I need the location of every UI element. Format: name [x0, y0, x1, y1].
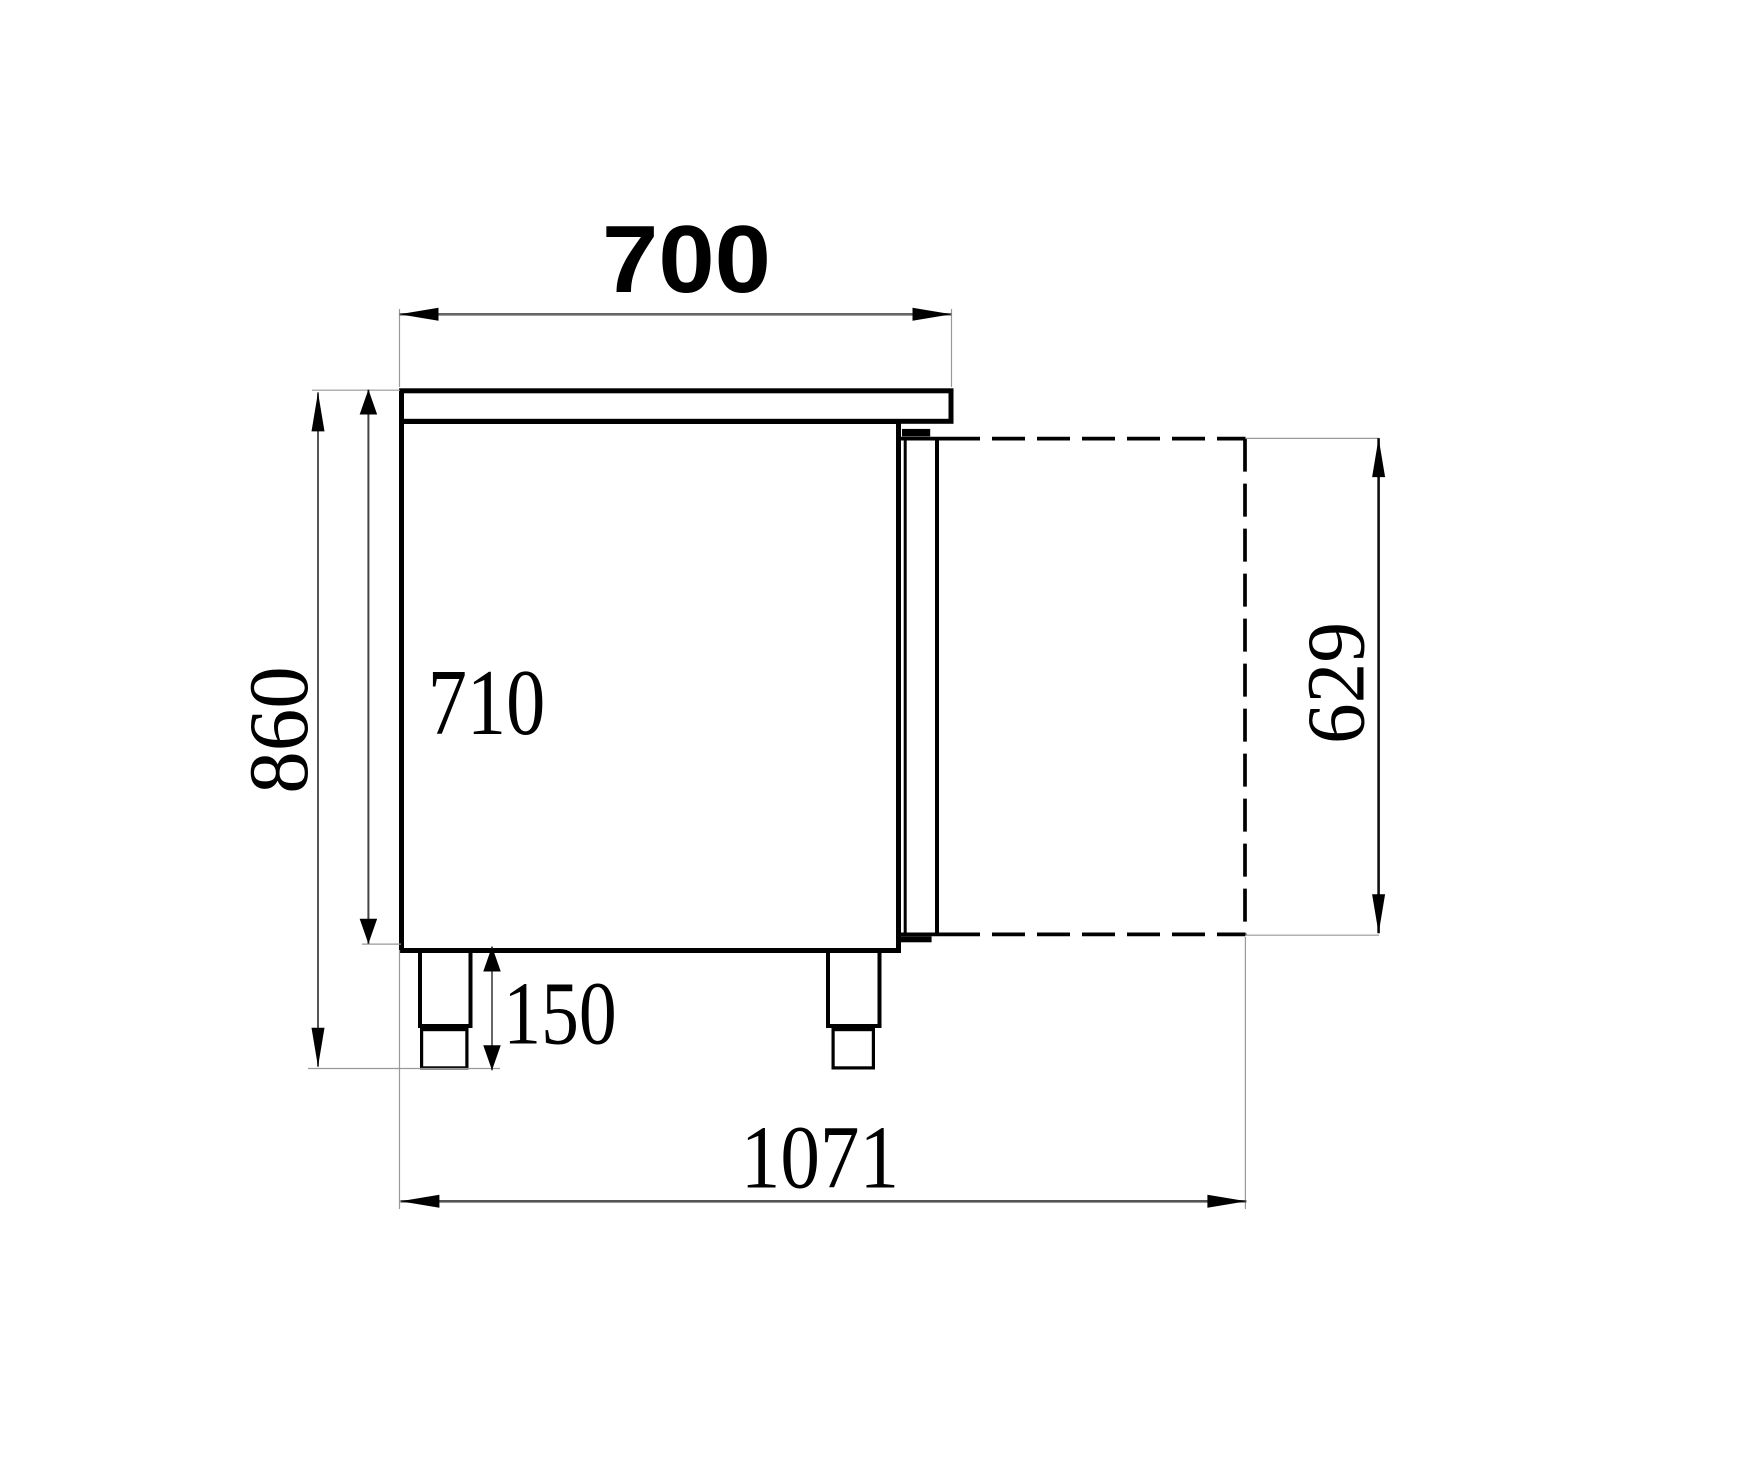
svg-text:629: 629 [1290, 622, 1382, 744]
svg-text:1071: 1071 [741, 1108, 899, 1208]
svg-text:700: 700 [602, 205, 771, 312]
svg-text:710: 710 [428, 650, 546, 754]
svg-text:860: 860 [232, 666, 326, 794]
svg-text:150: 150 [503, 964, 616, 1064]
